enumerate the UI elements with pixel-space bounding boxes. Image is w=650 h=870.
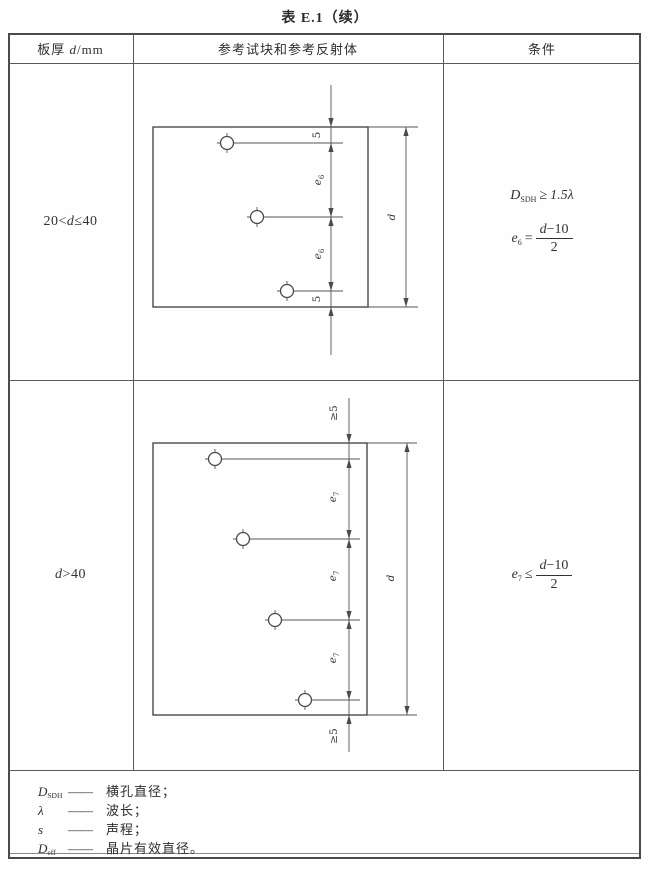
dim-label-d: d bbox=[385, 574, 397, 581]
dim-label-e7-3: e7 bbox=[327, 653, 341, 664]
note-dash: —— bbox=[68, 784, 106, 800]
reference-block-diagram-1: 5e6e65d bbox=[133, 63, 443, 380]
document-page: 表 E.1（续） 板厚 d/mm 参考试块和参考反射体 条件 20<d≤40 5… bbox=[0, 0, 650, 870]
table-title: 表 E.1（续） bbox=[0, 7, 650, 27]
legend-notes: DSDH —— 横孔直径； λ —— 波长； s —— 声程； Deff —— … bbox=[8, 770, 641, 853]
dim-label-5-top: 5 bbox=[311, 132, 323, 139]
condition-e6-formula: e6=d−102 bbox=[511, 222, 572, 256]
dim-label-e6-upper: e6 bbox=[312, 174, 326, 185]
header-thickness: 板厚 d/mm bbox=[8, 33, 133, 63]
header-condition: 条件 bbox=[443, 33, 641, 63]
note-item-dsdh: DSDH —— 横孔直径； bbox=[38, 781, 641, 800]
note-item-deff: Deff —— 晶片有效直径。 bbox=[38, 838, 641, 857]
row2-condition-cell: e7≤d−102 bbox=[443, 380, 641, 770]
dimension-arrow bbox=[404, 443, 409, 452]
note-definition: 波长； bbox=[106, 800, 148, 819]
note-dash: —— bbox=[68, 822, 106, 838]
note-dash: —— bbox=[68, 803, 106, 819]
dim-label-5-bottom: 5 bbox=[311, 296, 323, 303]
note-term: DSDH bbox=[38, 784, 68, 800]
dimension-arrow bbox=[328, 208, 333, 217]
condition-e7-formula: e7≤d−102 bbox=[512, 558, 573, 592]
sdh-hole bbox=[299, 694, 312, 707]
row1-thickness-cell: 20<d≤40 bbox=[8, 63, 133, 380]
dimension-arrow bbox=[328, 282, 333, 291]
condition-sdh-formula: DSDH≥1.5λ bbox=[510, 188, 573, 204]
dimension-arrow bbox=[328, 307, 333, 316]
fraction: d−102 bbox=[536, 558, 573, 592]
note-item-s: s —— 声程； bbox=[38, 819, 641, 838]
sdh-hole bbox=[221, 137, 234, 150]
dimension-arrow bbox=[328, 143, 333, 152]
header-reference-block: 参考试块和参考反射体 bbox=[133, 33, 443, 63]
note-definition: 晶片有效直径。 bbox=[106, 838, 204, 857]
dimension-arrow bbox=[346, 691, 351, 700]
note-term: s bbox=[38, 822, 68, 838]
dimension-arrow bbox=[346, 620, 351, 629]
sdh-hole bbox=[269, 614, 282, 627]
row2-thickness-text: d>40 bbox=[55, 567, 86, 583]
reference-block-diagram-2: ≥5e7e7e7≥5d bbox=[133, 380, 443, 770]
fraction: d−102 bbox=[536, 222, 573, 256]
dimension-arrow bbox=[346, 530, 351, 539]
dimension-arrow bbox=[328, 118, 333, 127]
note-definition: 声程； bbox=[106, 819, 148, 838]
header-condition-text: 条件 bbox=[528, 39, 556, 58]
dimension-arrow bbox=[328, 217, 333, 226]
dimension-arrow bbox=[404, 706, 409, 715]
note-item-lambda: λ —— 波长； bbox=[38, 800, 641, 819]
note-dash: —— bbox=[68, 841, 106, 857]
row2-thickness-cell: d>40 bbox=[8, 380, 133, 770]
dim-label-e7-2: e7 bbox=[327, 571, 341, 582]
sdh-hole bbox=[209, 453, 222, 466]
dimension-arrow bbox=[346, 715, 351, 724]
dimension-arrow bbox=[346, 539, 351, 548]
sdh-hole bbox=[251, 211, 264, 224]
dim-label-ge5-top: ≥5 bbox=[328, 405, 340, 420]
sdh-hole bbox=[281, 285, 294, 298]
dim-label-ge5-bottom: ≥5 bbox=[328, 728, 340, 743]
row1-condition-cell: DSDH≥1.5λ e6=d−102 bbox=[443, 63, 641, 380]
header-thickness-text: 板厚 d/mm bbox=[37, 39, 104, 58]
dimension-arrow bbox=[403, 127, 408, 136]
dimension-arrow bbox=[346, 434, 351, 443]
dimension-arrow bbox=[403, 298, 408, 307]
note-definition: 横孔直径； bbox=[106, 781, 176, 800]
sdh-hole bbox=[237, 533, 250, 546]
note-term: λ bbox=[38, 803, 68, 819]
header-reference-block-text: 参考试块和参考反射体 bbox=[218, 39, 358, 58]
dim-label-d: d bbox=[386, 213, 398, 220]
dim-label-e7-1: e7 bbox=[327, 492, 341, 503]
dimension-arrow bbox=[346, 459, 351, 468]
dim-label-e6-lower: e6 bbox=[312, 248, 326, 259]
table-title-text: 表 E.1（续） bbox=[281, 11, 368, 26]
dimension-arrow bbox=[346, 611, 351, 620]
note-term: Deff bbox=[38, 841, 68, 857]
row1-thickness-text: 20<d≤40 bbox=[43, 214, 97, 230]
